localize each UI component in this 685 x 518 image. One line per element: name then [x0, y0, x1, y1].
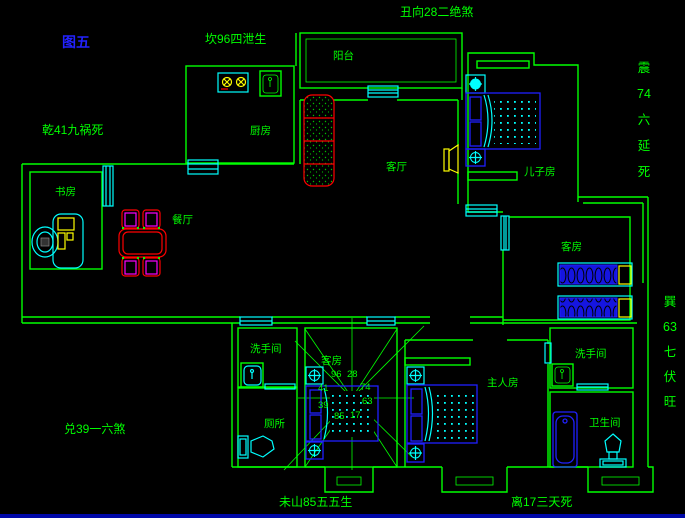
- kitchen-sink: [260, 71, 281, 96]
- guest-bed: [558, 296, 632, 319]
- compass-number-96: 96: [331, 368, 342, 381]
- master-bedroom-furniture: [405, 358, 477, 462]
- washroom2-sink: [552, 364, 573, 386]
- room-label-balcony: 阳台: [333, 50, 354, 63]
- annotation-east: 震 74 六 延 死: [631, 55, 657, 185]
- nightstand: [466, 75, 485, 93]
- annotation-east-char: 74: [631, 81, 657, 107]
- room-label-living: 客厅: [386, 161, 407, 174]
- nightstand: [407, 367, 424, 384]
- compass-number-63: 63: [362, 395, 373, 408]
- annotation-east-char: 震: [631, 55, 657, 81]
- figure-number-label: 图五: [62, 36, 90, 49]
- compass-number-74: 74: [360, 381, 371, 394]
- guest-bed: [558, 263, 632, 286]
- annotation-northeast: 丑向28二绝煞: [400, 6, 473, 19]
- toilet: [238, 436, 274, 458]
- annotation-southeast-char: 七: [657, 340, 683, 365]
- room-label-sons-room: 儿子房: [524, 166, 556, 179]
- window-bottom-edge: [0, 514, 685, 518]
- guest-room-door: [501, 216, 509, 250]
- annotation-east-char: 死: [631, 159, 657, 185]
- sons-room-furniture: [466, 61, 540, 180]
- sons-room-window: [466, 205, 497, 216]
- annotation-northwest: 乾41九祸死: [42, 124, 103, 137]
- washroom2-window: [577, 384, 608, 390]
- dining-chair: [122, 210, 139, 228]
- nightstand: [407, 444, 424, 462]
- dining-chair: [122, 258, 139, 276]
- room-label-dining: 餐厅: [172, 214, 193, 227]
- washroom-window: [240, 317, 272, 325]
- dining-chair: [143, 210, 160, 228]
- guest-beds: [558, 263, 632, 319]
- kitchen-window: [188, 160, 218, 174]
- wall-notches: [325, 467, 653, 492]
- room-label-inner-bedroom: 客房: [321, 355, 342, 368]
- kitchen-stove: [218, 73, 248, 92]
- room-label-kitchen: 厨房: [250, 125, 271, 138]
- compass-number-85: 85: [334, 410, 345, 423]
- room-label-washroom-2: 洗手间: [575, 348, 607, 361]
- annotation-southeast-char: 巽: [657, 290, 683, 315]
- toilet-2: [600, 434, 626, 467]
- compass-number-41: 41: [318, 382, 329, 395]
- nightstand: [466, 149, 485, 166]
- tv: [444, 145, 458, 173]
- room-label-study: 书房: [55, 186, 76, 199]
- room-label-master-bedroom: 主人房: [487, 377, 519, 390]
- sons-bed: [466, 93, 540, 149]
- annotation-southeast-char: 63: [657, 315, 683, 340]
- room-label-bathroom: 卫生间: [589, 417, 621, 430]
- inner-bedroom-window: [367, 317, 395, 325]
- bathtub: [553, 412, 577, 467]
- annotation-southeast-char: 旺: [657, 390, 683, 415]
- washroom-sink: [241, 363, 263, 387]
- annotation-southeast-char: 伏: [657, 365, 683, 390]
- annotation-south: 离17三天死: [511, 496, 572, 509]
- master-bed: [407, 385, 477, 443]
- compass-number-28: 28: [347, 368, 358, 381]
- dining-chair: [143, 258, 160, 276]
- floor-plan-drawing: [0, 0, 685, 518]
- room-label-toilet: 厕所: [264, 418, 285, 431]
- annotation-north: 坎96四泄生: [205, 33, 266, 46]
- annotation-east-char: 延: [631, 133, 657, 159]
- room-label-washroom: 洗手间: [250, 343, 282, 356]
- annotation-southwest: 未山85五五生: [279, 496, 352, 509]
- annotation-east-char: 六: [631, 107, 657, 133]
- room-label-guest-room: 客房: [561, 241, 582, 254]
- annotation-southeast: 巽 63 七 伏 旺: [657, 290, 683, 415]
- hall-sliding-door: [103, 166, 113, 206]
- dining-set: [119, 210, 166, 276]
- cad-floor-plan-canvas: 图五 坎96四泄生 丑向28二绝煞 乾41九祸死 兑39一六煞 未山85五五生 …: [0, 0, 685, 518]
- annotation-west: 兑39一六煞: [64, 423, 125, 436]
- sofa: [304, 95, 334, 186]
- study-desk: [32, 214, 83, 268]
- compass-number-17: 17: [350, 409, 361, 422]
- compass-number-39: 39: [318, 399, 329, 412]
